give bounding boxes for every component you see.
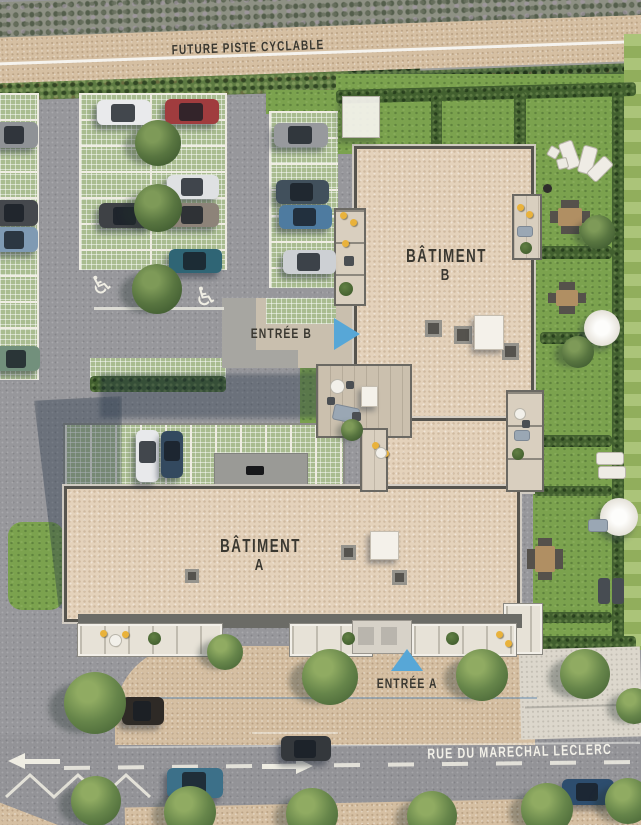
sofa-gray	[517, 226, 533, 237]
tree	[560, 649, 610, 699]
yellow	[340, 212, 347, 219]
table-white	[375, 447, 387, 459]
chair-dark	[346, 381, 354, 389]
entrance-b-arrow-icon	[334, 318, 360, 350]
site-plan: FUTURE PISTE CYCLABLE	[0, 0, 641, 825]
car	[169, 249, 222, 273]
entrance-a-marker[interactable]: ENTRÉE A	[352, 649, 462, 693]
lounger-dark	[612, 578, 624, 604]
car	[97, 100, 151, 125]
car	[279, 205, 332, 229]
lounger-light	[596, 452, 624, 465]
yellow	[526, 211, 533, 218]
yellow	[350, 219, 357, 226]
planter	[512, 448, 524, 460]
tree	[71, 776, 121, 825]
entrance-a-arrow-icon	[391, 649, 423, 671]
tree	[207, 634, 243, 670]
scene-objects	[0, 0, 641, 825]
yellow	[496, 631, 503, 638]
canopy	[342, 96, 380, 138]
tree	[134, 184, 182, 232]
building-a-label[interactable]: BÂTIMENT A	[190, 536, 330, 576]
car	[161, 431, 183, 478]
planter	[446, 632, 459, 645]
car	[122, 697, 164, 725]
tree	[562, 336, 594, 368]
yellow	[505, 640, 512, 647]
building-b-label[interactable]: BÂTIMENT B	[376, 246, 516, 286]
car	[0, 346, 40, 371]
lounger-light	[598, 466, 626, 479]
entrance-b-label: ENTRÉE B	[251, 325, 312, 341]
entrance-a-label: ENTRÉE A	[377, 675, 438, 691]
tree	[456, 649, 508, 701]
car	[274, 123, 328, 147]
chair-dark	[344, 256, 354, 266]
tree	[341, 419, 363, 441]
car	[281, 736, 331, 761]
lounger-dark	[598, 578, 610, 604]
planter	[520, 242, 532, 254]
yellow	[517, 204, 524, 211]
planter	[148, 632, 161, 645]
entrance-b-marker[interactable]: ENTRÉE B	[240, 325, 323, 343]
chair-dark	[522, 420, 530, 428]
planter	[339, 282, 353, 296]
yellow	[342, 240, 349, 247]
car	[0, 227, 38, 252]
table-wood	[556, 290, 578, 306]
car	[165, 99, 219, 124]
table-white	[109, 634, 122, 647]
yellow	[100, 630, 107, 637]
tree	[302, 649, 358, 705]
chair-dark	[327, 397, 335, 405]
car	[276, 180, 329, 204]
sofa-gray	[514, 430, 530, 441]
table-white	[514, 408, 526, 420]
tree	[581, 215, 615, 249]
grill	[543, 184, 552, 193]
tree	[64, 672, 126, 734]
car	[0, 200, 38, 226]
table-white	[330, 379, 345, 394]
table-wood	[535, 546, 555, 572]
car	[283, 250, 336, 274]
car	[0, 122, 38, 148]
tree	[407, 791, 457, 825]
car	[136, 430, 159, 482]
tree	[135, 120, 181, 166]
tree	[132, 264, 182, 314]
yellow	[122, 631, 129, 638]
planter	[342, 632, 355, 645]
sofa-gray	[588, 519, 608, 532]
tree	[286, 788, 338, 825]
